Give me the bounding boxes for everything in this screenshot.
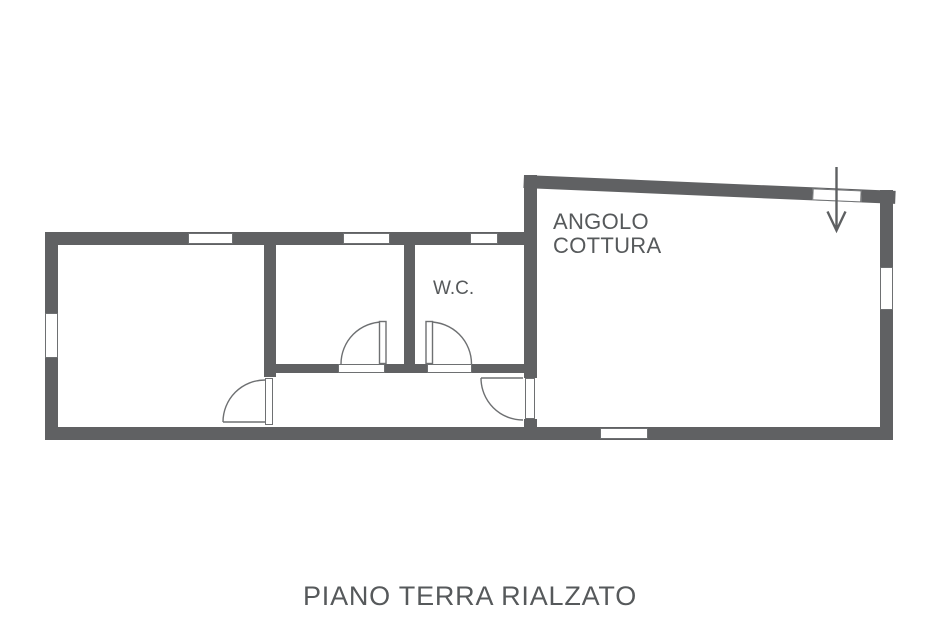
window-bottom-kitchen: [600, 428, 648, 439]
partition-wc-vertical: [404, 243, 415, 373]
doorway-wc: [427, 364, 472, 373]
exterior-wall-top-left-section: [45, 232, 537, 245]
exterior-wall-bottom: [45, 427, 893, 440]
door-arc-room2: [341, 322, 383, 364]
door-leaf-wc: [426, 322, 433, 364]
window-top-room1: [188, 233, 233, 244]
doorway-room2: [338, 364, 385, 373]
kitchen-label-line2: COTTURA: [553, 233, 661, 258]
partition-corridor-b: [385, 364, 427, 373]
wc-label: W.C.: [433, 279, 474, 298]
kitchen-left-wall-upper: [524, 175, 537, 378]
exterior-wall-right: [880, 190, 893, 427]
plan-title: PIANO TERRA RIALZATO: [0, 581, 940, 612]
window-top-wc: [470, 233, 498, 244]
door-leaf-room2: [380, 322, 387, 364]
partition-corridor-a: [264, 364, 338, 373]
door-arc-kitchen: [481, 378, 523, 420]
exterior-wall-top-kitchen-slanted: [523, 175, 895, 204]
window-top-room2: [343, 233, 390, 244]
plan-linework: [0, 0, 940, 626]
kitchen-left-wall-lower: [524, 419, 537, 440]
door-panel-kitchen: [525, 378, 535, 419]
window-right-wall: [880, 267, 893, 310]
partition-room1-vertical: [264, 243, 276, 377]
door-panel-room1: [265, 378, 273, 425]
partition-corridor-c: [472, 364, 537, 373]
kitchen-label: ANGOLOCOTTURA: [553, 210, 661, 257]
door-arc-wc: [430, 322, 472, 364]
floor-plan: ANGOLOCOTTURA W.C. PIANO TERRA RIALZATO: [0, 0, 940, 626]
door-arc-room1: [223, 380, 265, 422]
window-left-wall: [45, 313, 58, 358]
exterior-wall-left: [45, 232, 58, 440]
window-top-kitchen: [812, 188, 861, 202]
kitchen-label-line1: ANGOLO: [553, 209, 649, 234]
